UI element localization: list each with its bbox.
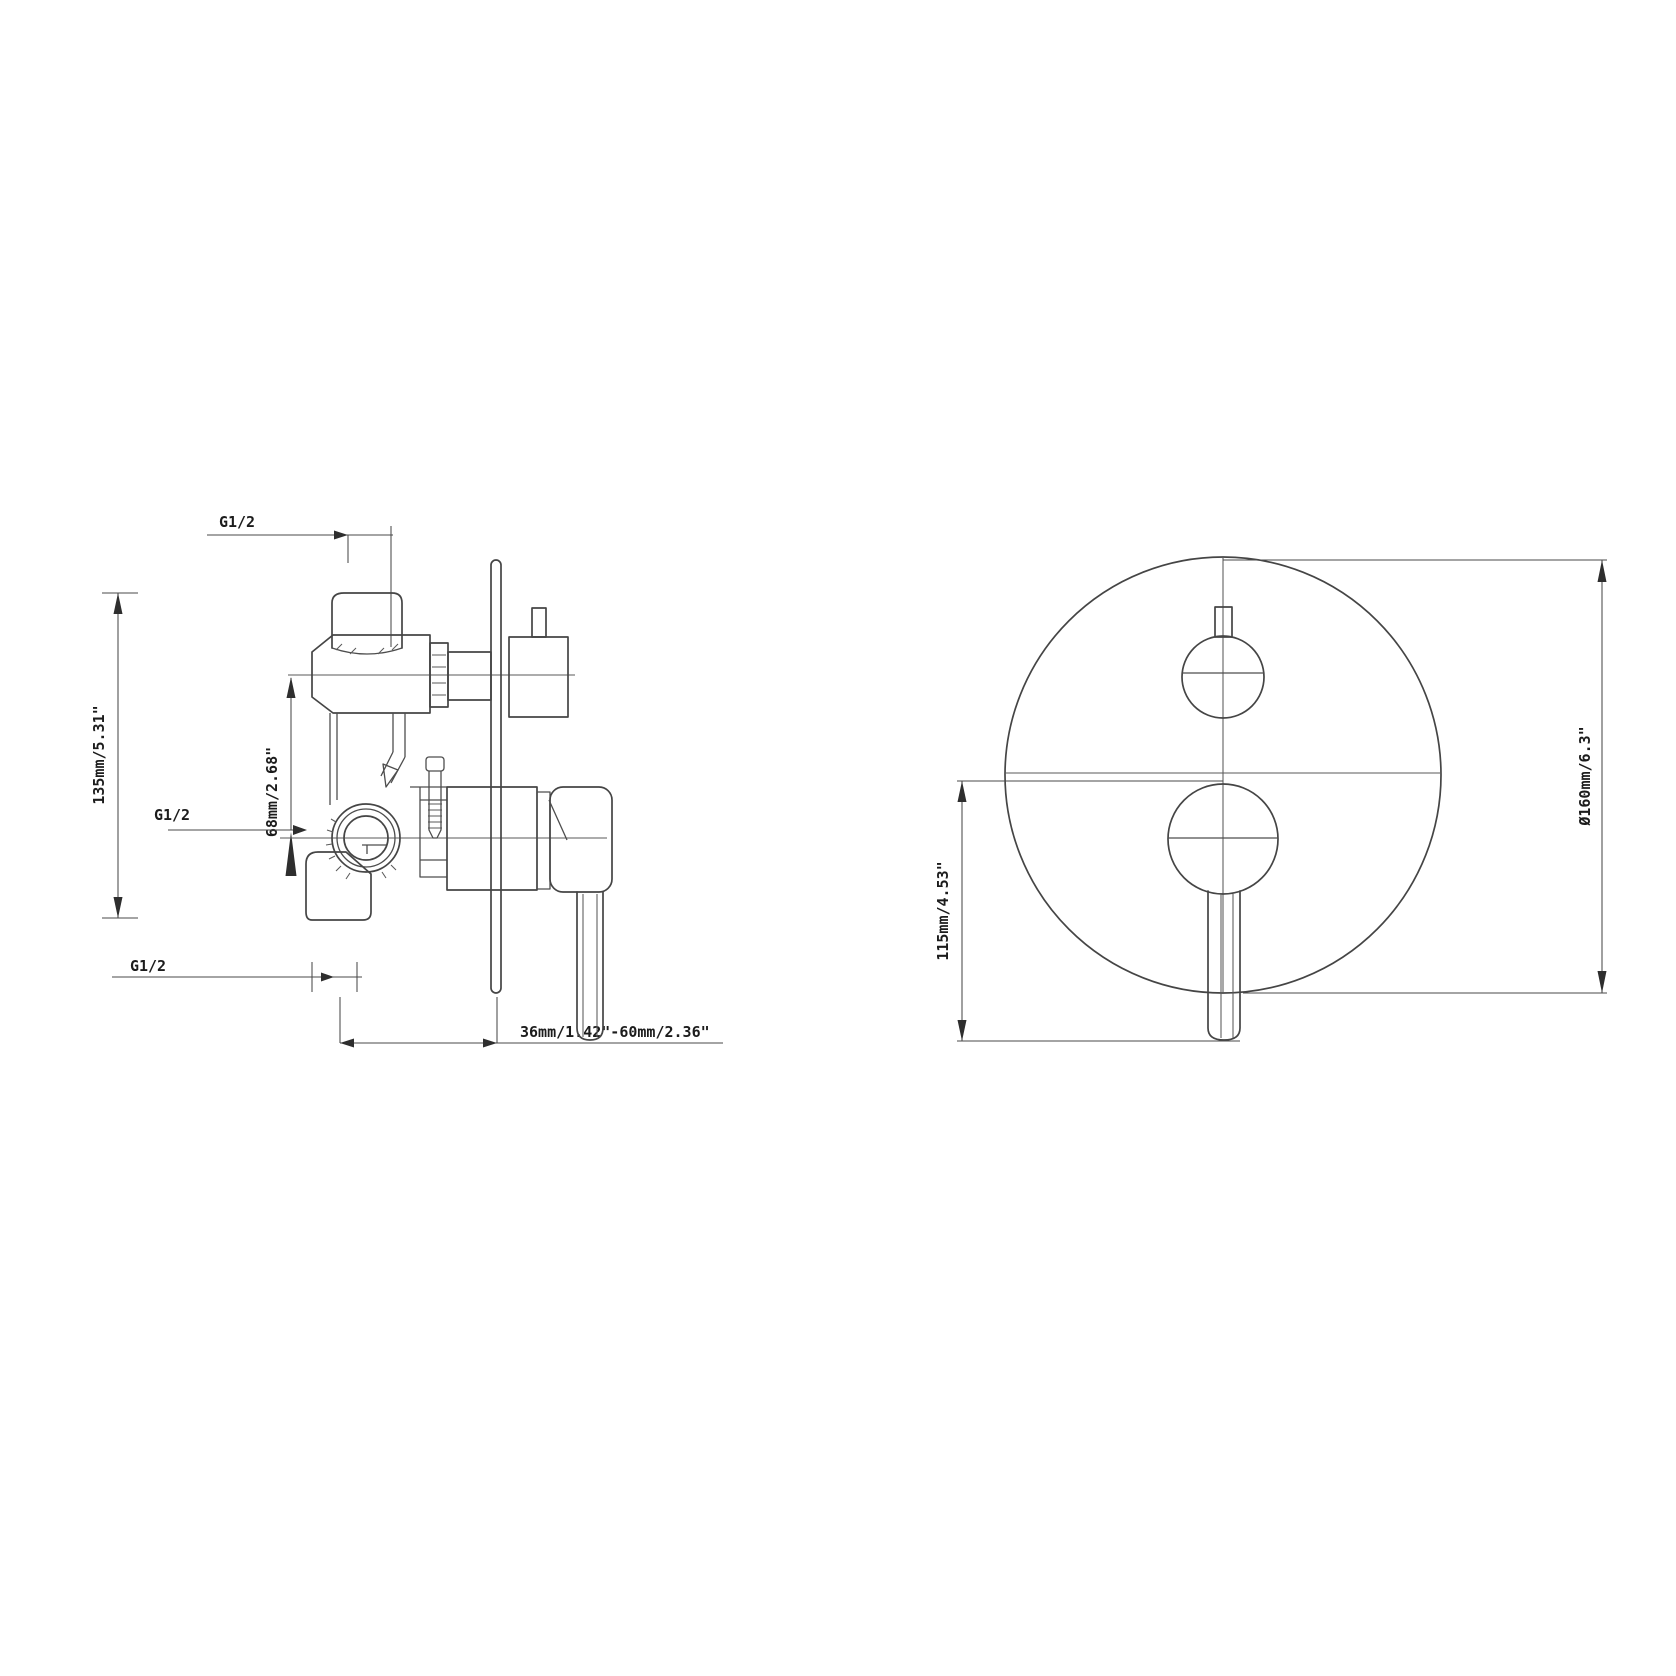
lever-offset-label: 115mm/4.53"	[934, 861, 952, 960]
outlet-pipe	[448, 652, 491, 700]
side-view: G1/2 135mm/5.31" 68mm/2.68" G1/2	[90, 513, 723, 1048]
dim-installation-depth: 36mm/1.42"-60mm/2.36"	[340, 997, 723, 1048]
lever-hub-side	[550, 787, 612, 892]
dim-port-offset: 68mm/2.68"	[263, 677, 297, 876]
dim-plate-diameter: Ø160mm/6.3"	[1223, 560, 1607, 993]
trim-plate	[1005, 557, 1441, 993]
technical-drawing-canvas: G1/2 135mm/5.31" 68mm/2.68" G1/2	[0, 0, 1676, 1676]
lever-bar-front	[1208, 891, 1240, 1040]
bleed-screw	[426, 757, 444, 838]
axis-lines	[280, 675, 607, 838]
front-view: Ø160mm/6.3" 115mm/4.53"	[934, 557, 1607, 1041]
inlet-thread-label: G1/2	[154, 806, 190, 824]
dim-lever-offset: 115mm/4.53"	[934, 781, 1240, 1041]
technical-drawing-page: G1/2 135mm/5.31" 68mm/2.68" G1/2	[0, 0, 1676, 1676]
diverter-knob-side	[509, 608, 568, 717]
valve-main-body	[312, 635, 430, 713]
plate-diameter-label: Ø160mm/6.3"	[1576, 726, 1594, 826]
lower-elbow	[306, 852, 371, 920]
lever-bar-side	[577, 892, 603, 1040]
overall-height-label: 135mm/5.31"	[90, 705, 108, 804]
installation-depth-label: 36mm/1.42"-60mm/2.36"	[520, 1023, 710, 1041]
dim-bottom-thread: G1/2	[112, 957, 362, 992]
wall-plate-edge	[491, 560, 501, 993]
mixer-cartridge-and-lever	[447, 787, 612, 1040]
valve-body	[312, 593, 491, 877]
leader-inlet-thread: G1/2	[154, 806, 307, 835]
diverter-stem-side	[532, 608, 546, 637]
lower-inlet-flange	[306, 804, 400, 920]
bottom-thread-label: G1/2	[130, 957, 166, 975]
dim-top-thread: G1/2	[207, 513, 393, 647]
port-offset-label: 68mm/2.68"	[263, 747, 281, 837]
diverter-body-side	[509, 637, 568, 717]
top-thread-label: G1/2	[219, 513, 255, 531]
dim-overall-height: 135mm/5.31"	[90, 593, 138, 918]
